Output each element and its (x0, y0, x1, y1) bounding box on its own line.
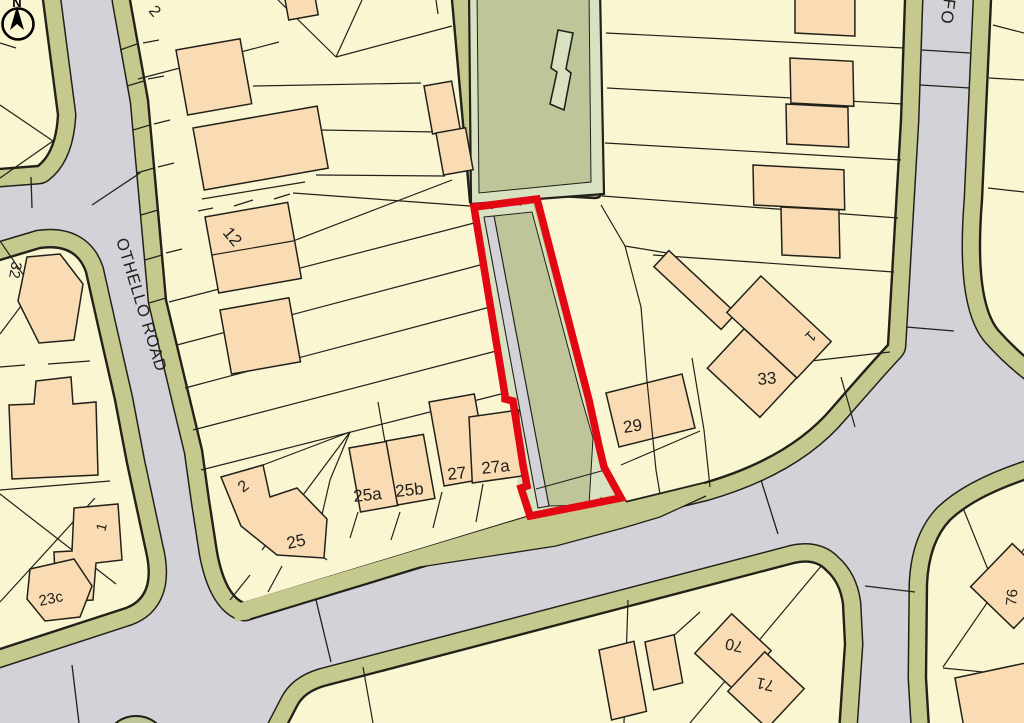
svg-text:25a: 25a (352, 484, 383, 506)
svg-text:33: 33 (757, 368, 778, 389)
svg-text:27: 27 (446, 463, 467, 484)
svg-text:71: 71 (755, 673, 776, 693)
svg-text:25b: 25b (394, 479, 424, 501)
svg-text:76: 76 (1003, 588, 1021, 606)
svg-text:29: 29 (622, 416, 643, 437)
svg-text:N: N (12, 0, 21, 10)
svg-text:FO: FO (937, 0, 959, 26)
svg-text:27a: 27a (480, 456, 511, 478)
svg-text:25: 25 (285, 530, 307, 553)
svg-text:32: 32 (5, 260, 25, 279)
svg-text:70: 70 (724, 634, 745, 654)
